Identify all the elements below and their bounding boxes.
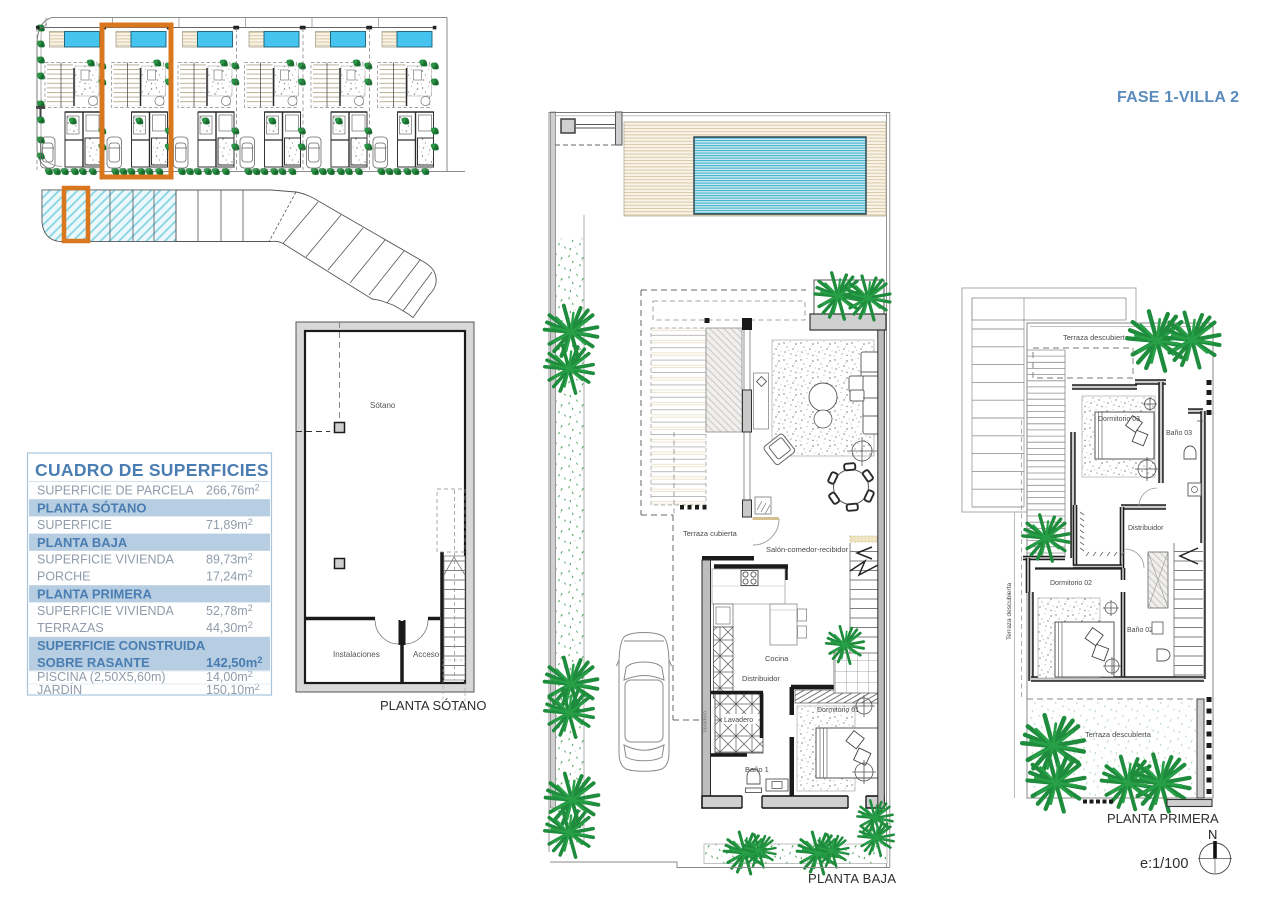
svg-text:TERRAZAS: TERRAZAS — [37, 621, 104, 635]
svg-text:SUPERFICIE VIVIENDA: SUPERFICIE VIVIENDA — [37, 604, 174, 618]
svg-text:lavadero: lavadero — [703, 711, 709, 732]
svg-text:Instalaciones: Instalaciones — [333, 650, 380, 659]
svg-text:SOBRE RASANTE: SOBRE RASANTE — [37, 655, 150, 670]
svg-text:PLANTA BAJA: PLANTA BAJA — [37, 535, 128, 550]
svg-text:SUPERFICIE VIVIENDA: SUPERFICIE VIVIENDA — [37, 552, 174, 566]
svg-text:PLANTA SÓTANO: PLANTA SÓTANO — [380, 698, 486, 713]
svg-text:PORCHE: PORCHE — [37, 570, 90, 584]
svg-text:PLANTA PRIMERA: PLANTA PRIMERA — [1107, 811, 1219, 826]
svg-text:Terraza descubierta: Terraza descubierta — [1063, 333, 1130, 342]
svg-text:44,30m2: 44,30m2 — [206, 620, 253, 635]
svg-text:71,89m2: 71,89m2 — [206, 517, 253, 532]
svg-text:Dormitorio 02: Dormitorio 02 — [1050, 580, 1092, 587]
svg-text:FASE 1-VILLA 2: FASE 1-VILLA 2 — [1117, 89, 1239, 106]
svg-text:17,24m2: 17,24m2 — [206, 569, 253, 584]
svg-text:Lavadero: Lavadero — [724, 717, 753, 724]
svg-text:Terraza descubierta: Terraza descubierta — [1085, 730, 1152, 739]
svg-text:e:1/100: e:1/100 — [1140, 856, 1188, 872]
svg-text:Sótano: Sótano — [370, 401, 396, 410]
svg-text:Baño 1: Baño 1 — [745, 765, 769, 774]
svg-text:CUADRO DE SUPERFICIES: CUADRO DE SUPERFICIES — [35, 460, 269, 480]
svg-text:266,76m2: 266,76m2 — [206, 483, 260, 498]
svg-text:52,78m2: 52,78m2 — [206, 603, 253, 618]
svg-text:142,50m2: 142,50m2 — [206, 655, 262, 670]
svg-text:Terraza cubierta: Terraza cubierta — [683, 529, 738, 538]
svg-text:Baño 02: Baño 02 — [1127, 627, 1153, 634]
svg-text:N: N — [1208, 827, 1217, 842]
svg-text:SUPERFICIE: SUPERFICIE — [37, 518, 112, 532]
svg-text:SUPERFICIE DE PARCELA: SUPERFICIE DE PARCELA — [37, 484, 194, 498]
svg-text:PLANTA PRIMERA: PLANTA PRIMERA — [37, 586, 152, 601]
svg-text:Distribuidor: Distribuidor — [742, 674, 780, 683]
svg-text:Distribuidor: Distribuidor — [1128, 525, 1164, 532]
svg-text:Dormitorio 01: Dormitorio 01 — [817, 707, 859, 714]
svg-text:PLANTA SÓTANO: PLANTA SÓTANO — [37, 500, 147, 515]
svg-text:Baño 03: Baño 03 — [1166, 430, 1192, 437]
svg-text:89,73m2: 89,73m2 — [206, 551, 253, 566]
svg-text:PLANTA BAJA: PLANTA BAJA — [808, 871, 896, 886]
svg-text:Cocina: Cocina — [765, 654, 789, 663]
svg-text:14,00m2: 14,00m2 — [206, 669, 253, 684]
svg-text:Acceso: Acceso — [413, 650, 440, 659]
svg-text:SUPERFICIE CONSTRUIDA: SUPERFICIE CONSTRUIDA — [37, 638, 206, 653]
svg-text:Terraza descubierta: Terraza descubierta — [1006, 583, 1013, 640]
svg-text:Dormitorio 03: Dormitorio 03 — [1098, 416, 1140, 423]
svg-text:Salón-comedor-recibidor: Salón-comedor-recibidor — [766, 545, 849, 554]
